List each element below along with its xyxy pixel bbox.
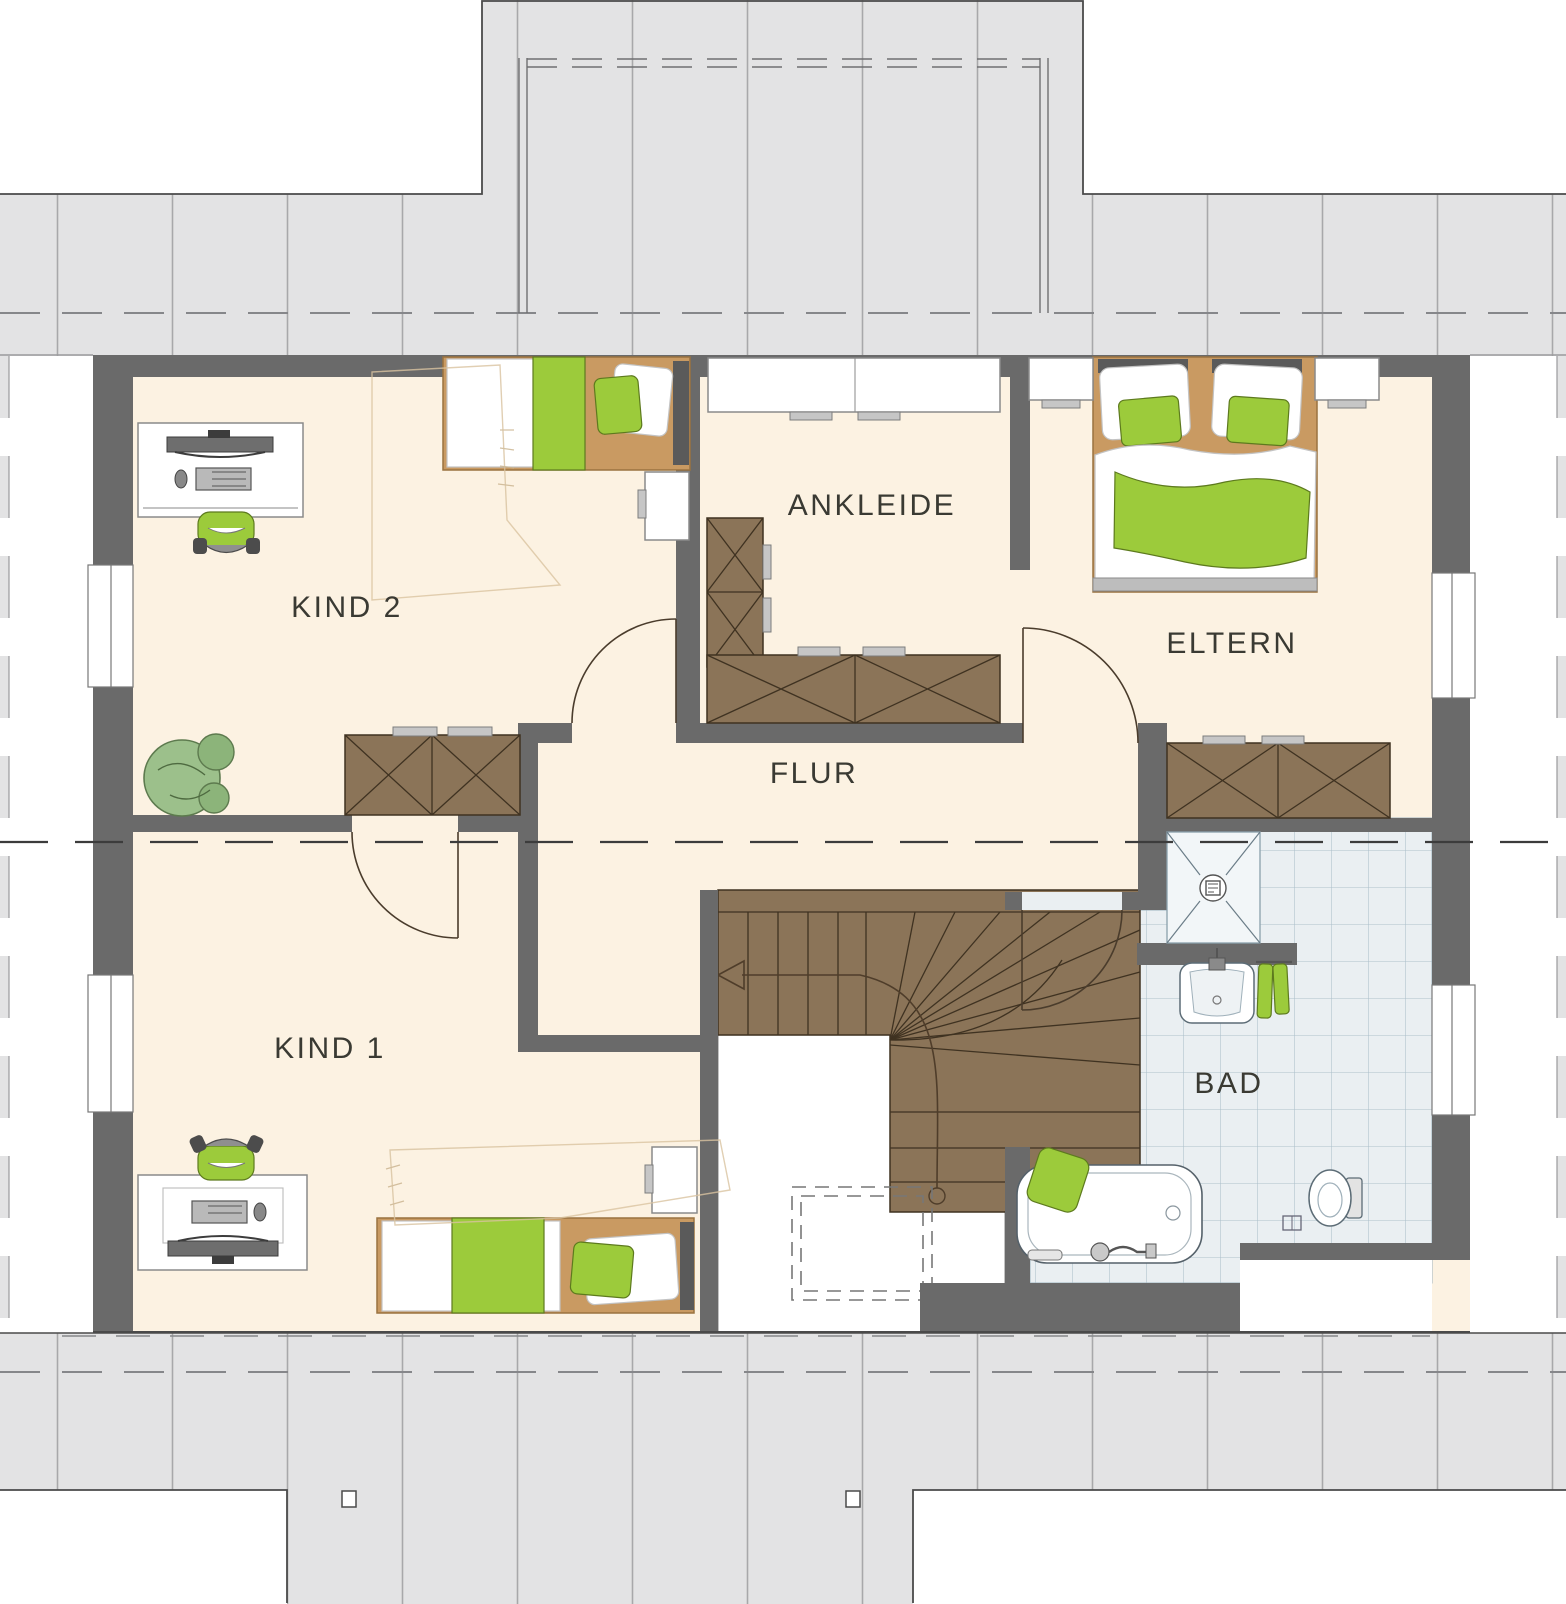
wall-left <box>93 355 133 1332</box>
wardrobe-kind2 <box>345 727 520 815</box>
door-opening-bad <box>1022 892 1122 910</box>
southeast-notch <box>1240 1260 1432 1333</box>
window-kind1-left <box>88 975 133 1112</box>
wardrobe-ankleide-left <box>707 518 771 667</box>
door-opening-eltern <box>1023 723 1138 743</box>
bottom-dormer-marker-left <box>342 1491 356 1507</box>
wall-right <box>1432 355 1470 1260</box>
chair-kind1 <box>188 1134 264 1180</box>
nightstand-kind1 <box>652 1147 697 1213</box>
bed-kind2 <box>443 357 690 470</box>
label-ankleide: ANKLEIDE <box>788 489 956 522</box>
shower-bad <box>1167 832 1260 943</box>
wardrobe-eltern <box>1167 736 1390 818</box>
nightstand-eltern-right <box>1315 358 1379 400</box>
chair-kind2 <box>193 512 260 554</box>
nightstand-eltern-left <box>1029 358 1093 400</box>
floorplan-drawing: KIND 2 ANKLEIDE ELTERN FLUR KIND 1 BAD <box>0 0 1566 1604</box>
window-eltern-right <box>1432 573 1475 698</box>
label-flur: FLUR <box>770 757 858 790</box>
desk-kind2 <box>138 423 303 517</box>
bed-kind1 <box>377 1218 694 1313</box>
nightstand-kind2 <box>645 472 689 540</box>
label-bad: BAD <box>1194 1067 1263 1100</box>
opening-ankleide-side <box>1010 570 1030 723</box>
wall-bad-door-stub-right <box>1122 892 1167 910</box>
closet-white-ankleide <box>708 358 1000 420</box>
window-kind2-left <box>88 565 133 687</box>
toilet-bad <box>1309 1170 1362 1226</box>
wall-bad-door-stub-left <box>1005 892 1022 910</box>
wall-kind2-kind1 <box>133 815 538 832</box>
bottom-dormer-roof <box>287 1490 913 1604</box>
wardrobe-ankleide-bottom <box>707 647 1000 723</box>
wall-eltern-bad <box>1167 818 1432 832</box>
window-bad-right <box>1432 985 1475 1115</box>
wall-kind1-flur <box>518 832 538 1052</box>
double-bed-eltern <box>1093 357 1317 592</box>
bottom-dormer-marker-right <box>846 1491 860 1507</box>
label-eltern: ELTERN <box>1166 627 1297 660</box>
bottom-roof-band <box>0 1333 1566 1490</box>
top-roof-band <box>0 194 1566 356</box>
door-opening-kind2 <box>572 723 676 743</box>
wall-flur-pocket-south <box>538 1035 718 1052</box>
label-kind1: KIND 1 <box>274 1032 386 1065</box>
wall-bath-south <box>920 1283 1240 1332</box>
desk-kind1 <box>138 1175 307 1270</box>
floorplan-page: KIND 2 ANKLEIDE ELTERN FLUR KIND 1 BAD <box>0 0 1566 1604</box>
label-kind2: KIND 2 <box>291 591 403 624</box>
wall-stair-left <box>700 890 718 1332</box>
door-opening-kind1 <box>352 815 458 832</box>
top-dormer-roof <box>482 0 1083 196</box>
wall-ankleide-eltern <box>1010 377 1030 570</box>
wall-flur-bad-east <box>1138 743 1167 892</box>
wall-bath-southeast <box>1240 1243 1470 1260</box>
